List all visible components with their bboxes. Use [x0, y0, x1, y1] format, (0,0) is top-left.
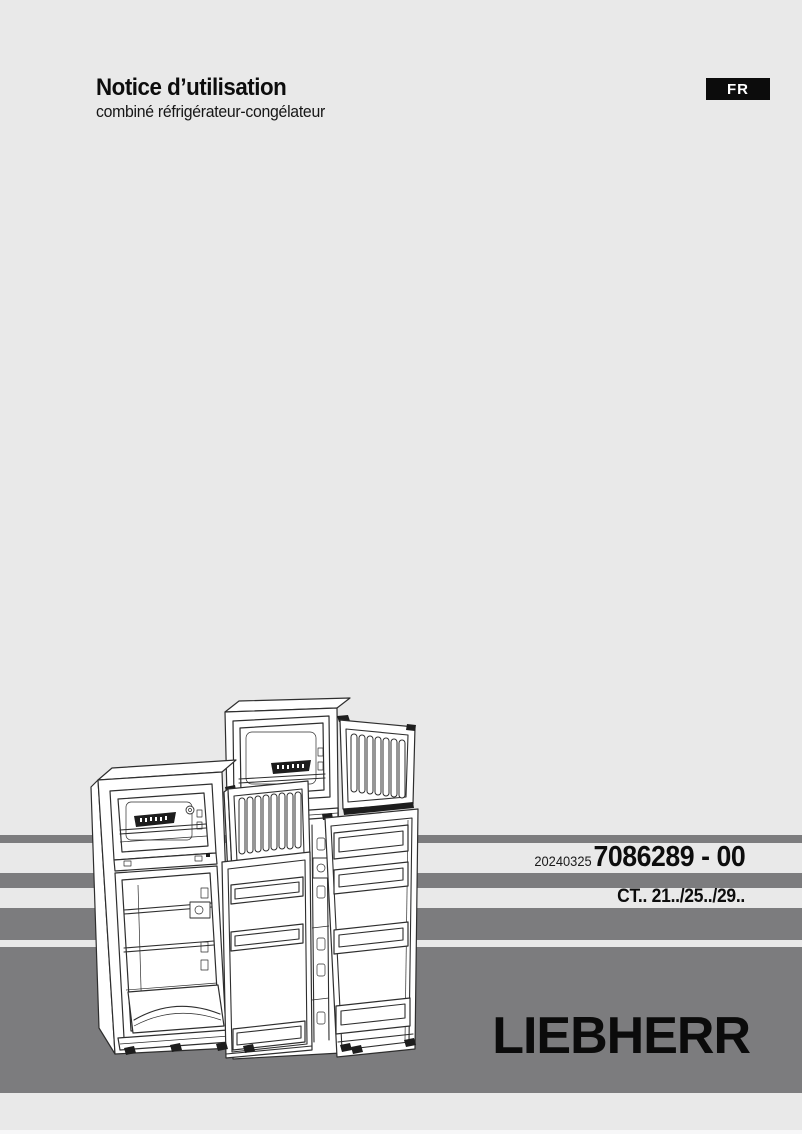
- model-series: CT.. 21../25../29..: [617, 886, 745, 908]
- language-badge: FR: [706, 78, 770, 100]
- page-subtitle: combiné réfrigérateur-congélateur: [96, 102, 325, 122]
- right-refrigerator-door-drawing: [322, 809, 418, 1057]
- liebherr-logo: LIEBHERR: [492, 1010, 750, 1062]
- stripe-bottom-light: [0, 1130, 802, 1134]
- part-number-row: 20240325 7086289 - 00: [534, 841, 745, 873]
- left-refrigerator-drawing: [91, 760, 312, 1058]
- header: Notice d’utilisation combiné réfrigérate…: [96, 74, 325, 122]
- date-code: 20240325: [534, 853, 591, 869]
- refrigerator-illustration: [40, 690, 440, 1090]
- part-number: 7086289 - 00: [593, 841, 745, 874]
- page-title: Notice d’utilisation: [96, 74, 325, 102]
- manual-cover-page: Notice d’utilisation combiné réfrigérate…: [0, 0, 802, 1134]
